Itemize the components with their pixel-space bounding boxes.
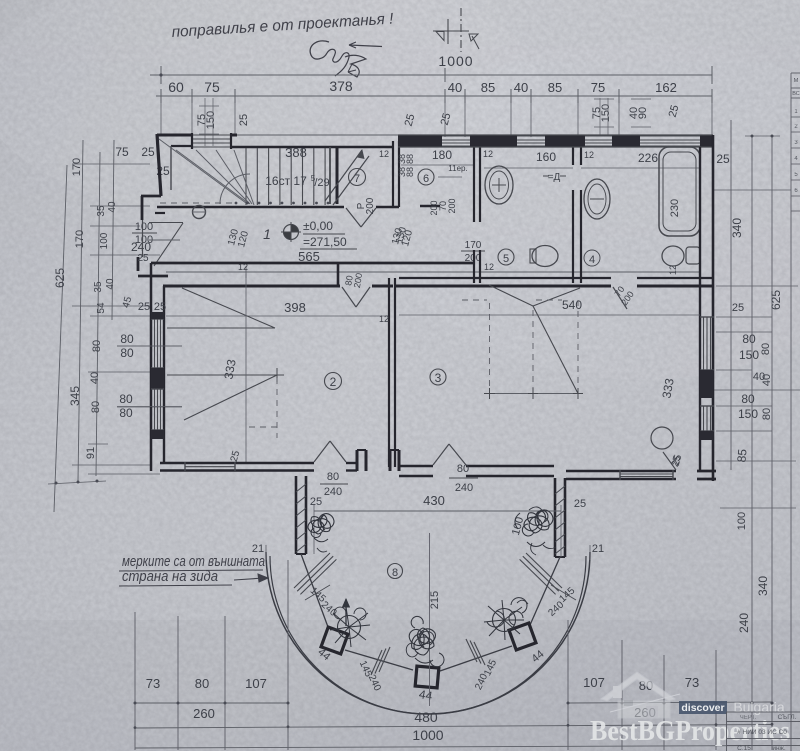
svg-text:12: 12 [379, 314, 389, 324]
svg-text:40: 40 [89, 372, 101, 384]
svg-text:73: 73 [685, 675, 699, 690]
svg-text:625: 625 [769, 290, 783, 310]
svg-text:/29: /29 [314, 177, 329, 189]
svg-text:180: 180 [432, 148, 452, 162]
svg-text:12: 12 [668, 265, 678, 275]
svg-text:388: 388 [285, 145, 307, 160]
svg-text:80: 80 [119, 406, 133, 420]
svg-text:150: 150 [600, 104, 612, 122]
svg-text:480: 480 [414, 709, 438, 725]
svg-text:25: 25 [141, 145, 155, 159]
svg-text:21: 21 [592, 543, 604, 555]
svg-text:170: 170 [465, 240, 482, 251]
svg-text:М: М [794, 78, 799, 84]
svg-text:260: 260 [193, 706, 215, 721]
svg-text:540: 540 [562, 298, 582, 312]
svg-text:25: 25 [137, 253, 149, 264]
svg-text:35: 35 [93, 281, 104, 293]
svg-text:75: 75 [204, 79, 220, 95]
svg-text:25: 25 [732, 302, 744, 314]
svg-text:# НИИ 03 ИС С0: # НИИ 03 ИС С0 [737, 729, 787, 736]
svg-text:80: 80 [327, 471, 339, 483]
svg-text:170: 170 [71, 158, 83, 176]
svg-text:3: 3 [435, 371, 442, 385]
svg-text:25: 25 [574, 498, 586, 510]
svg-text:200: 200 [365, 197, 376, 214]
svg-text:СЪГЛ.: СЪГЛ. [778, 714, 797, 721]
svg-text:12: 12 [584, 150, 594, 160]
svg-text:398: 398 [284, 300, 306, 315]
svg-text:80: 80 [90, 401, 102, 413]
svg-text:200: 200 [447, 198, 457, 213]
svg-text:100: 100 [99, 232, 110, 249]
svg-text:226: 226 [638, 151, 658, 165]
svg-text:107: 107 [583, 675, 605, 690]
svg-text:160: 160 [536, 150, 556, 164]
svg-text:345: 345 [68, 386, 82, 406]
svg-text:80: 80 [741, 392, 755, 406]
svg-text:1: 1 [263, 226, 271, 242]
svg-text:88: 88 [405, 154, 415, 164]
svg-text:80: 80 [119, 392, 133, 406]
svg-text:170: 170 [74, 230, 86, 248]
svg-text:150: 150 [205, 111, 217, 129]
svg-text:80: 80 [120, 346, 134, 360]
svg-text:200: 200 [429, 200, 439, 215]
svg-text:инж.: инж. [772, 745, 786, 751]
svg-text:625: 625 [53, 268, 67, 288]
svg-text:80: 80 [195, 676, 209, 691]
svg-text:11ер.: 11ер. [448, 164, 467, 173]
svg-text:162: 162 [655, 80, 677, 95]
svg-text:150: 150 [739, 348, 759, 362]
svg-text:107: 107 [245, 676, 267, 691]
svg-text:80: 80 [742, 332, 756, 346]
svg-text:430: 430 [423, 493, 445, 508]
svg-text:88: 88 [405, 167, 415, 177]
svg-text:378: 378 [329, 78, 353, 94]
svg-text:85: 85 [481, 80, 495, 95]
svg-text:40: 40 [105, 278, 116, 290]
svg-text:7: 7 [354, 173, 360, 185]
svg-text:discover: discover [681, 702, 724, 714]
svg-text:340: 340 [730, 218, 744, 238]
svg-text:35: 35 [96, 205, 107, 217]
svg-text:73: 73 [146, 676, 160, 691]
svg-text:1000: 1000 [438, 53, 473, 69]
svg-text:25: 25 [310, 496, 322, 508]
svg-text:8: 8 [392, 567, 398, 579]
svg-text:25: 25 [238, 114, 250, 126]
svg-text:5: 5 [503, 253, 509, 265]
svg-text:12: 12 [483, 149, 493, 159]
svg-text:С.15: С.15 [737, 745, 751, 751]
svg-text:ЧЕРТ.: ЧЕРТ. [740, 715, 757, 721]
svg-text:240: 240 [324, 486, 342, 498]
svg-text:75: 75 [115, 145, 129, 159]
svg-text:ВС: ВС [792, 91, 799, 97]
svg-text:91: 91 [85, 447, 97, 459]
svg-text:80: 80 [120, 332, 134, 346]
svg-text:340: 340 [756, 576, 770, 596]
svg-text:±0,00: ±0,00 [303, 219, 333, 233]
svg-text:54: 54 [96, 302, 107, 314]
svg-text:40: 40 [448, 80, 462, 95]
svg-text:40: 40 [753, 371, 765, 383]
svg-text:150: 150 [738, 407, 758, 421]
svg-text:80: 80 [761, 408, 773, 420]
svg-text:215: 215 [429, 591, 441, 609]
svg-text:40: 40 [514, 80, 528, 95]
svg-text:100: 100 [736, 512, 748, 530]
svg-text:12: 12 [379, 149, 389, 159]
svg-text:16ст 17: 16ст 17 [265, 174, 307, 188]
svg-text:240: 240 [455, 482, 473, 494]
svg-text:1000: 1000 [412, 727, 443, 743]
svg-text:60: 60 [168, 79, 184, 95]
svg-text:страна на зида: страна на зида [122, 569, 218, 585]
svg-text:80: 80 [457, 463, 469, 475]
svg-text:25: 25 [138, 301, 150, 313]
svg-text:44: 44 [418, 687, 434, 703]
svg-text:40: 40 [107, 201, 118, 213]
svg-text:90: 90 [637, 107, 649, 119]
svg-text:=271,50: =271,50 [303, 235, 347, 249]
svg-text:6: 6 [423, 173, 429, 185]
svg-text:75: 75 [591, 80, 605, 95]
svg-text:240: 240 [737, 613, 751, 633]
svg-text:80: 80 [91, 340, 103, 352]
svg-text:240: 240 [131, 240, 151, 254]
svg-text:мерките са от външната: мерките са от външната [122, 554, 265, 570]
svg-text:4: 4 [589, 254, 595, 266]
svg-text:85: 85 [734, 448, 749, 463]
svg-text:85: 85 [548, 80, 562, 95]
svg-text:25: 25 [154, 301, 166, 313]
svg-text:80: 80 [760, 343, 772, 355]
svg-text:2: 2 [330, 375, 337, 389]
svg-text:Bulgaria: Bulgaria [733, 699, 785, 715]
svg-text:=Д: =Д [548, 172, 561, 183]
svg-text:12: 12 [484, 262, 494, 272]
svg-text:230: 230 [669, 199, 681, 217]
svg-text:25: 25 [716, 152, 730, 166]
